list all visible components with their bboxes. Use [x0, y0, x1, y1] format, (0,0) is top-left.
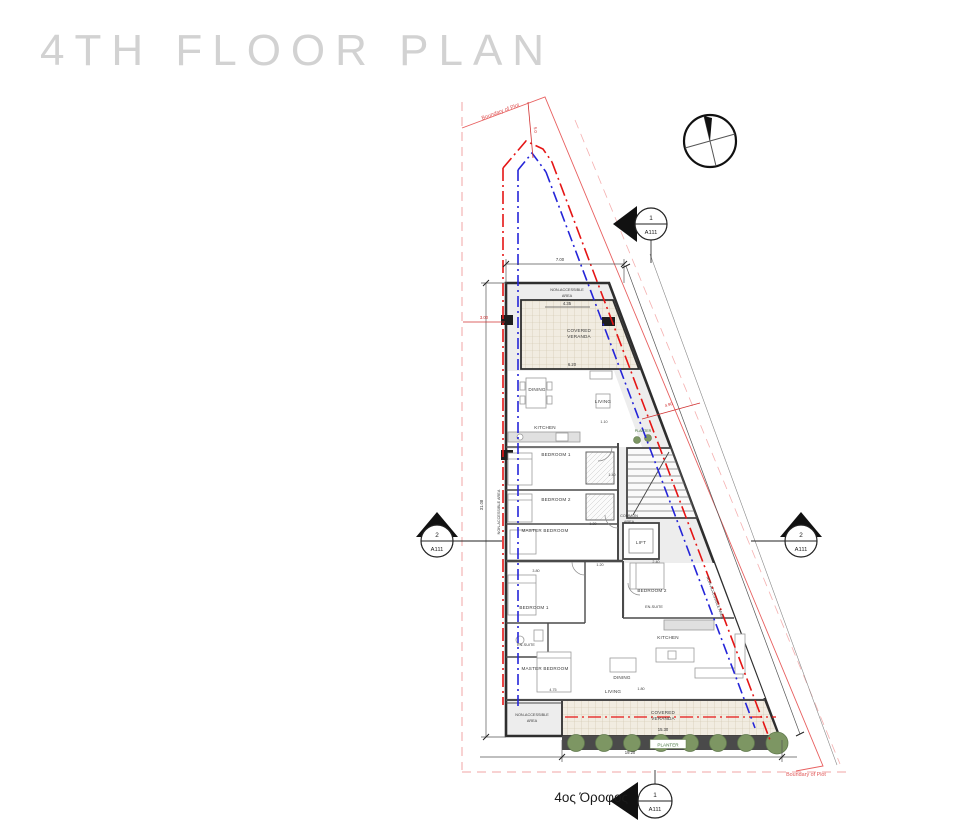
stairs — [627, 448, 697, 518]
dim-side-length: 31.08 — [479, 499, 484, 510]
area-label-covered-veranda-top-2: VERANDA — [567, 334, 591, 339]
area-label-non-accessible-top: NON-ACCESSIBLE — [550, 288, 584, 292]
dim-120: 1.20 — [596, 563, 603, 567]
area-label-non-accessible-bottom-2: AREA — [527, 719, 538, 723]
section-marker-top: 1 A111 — [613, 206, 667, 263]
dim-living-width: 6.20 — [568, 362, 577, 367]
dim-veranda-depth: 4.35 — [563, 301, 572, 306]
section-marker-right-sheet: A111 — [795, 547, 808, 553]
dim-380: 3.80 — [532, 569, 539, 573]
section-marker-top-sheet: A111 — [645, 230, 658, 236]
room-label-bedroom2-1: BEDROOM 2 — [541, 497, 571, 502]
boundary-label-top: Boundary of Plot — [481, 102, 521, 121]
room-label-master-2: MASTER BEDROOM — [522, 666, 569, 671]
section-marker-right-number: 2 — [799, 532, 803, 539]
boundary-label-bottom: Boundary of Plot — [786, 772, 826, 778]
section-marker-bottom-sheet: A111 — [649, 807, 662, 813]
planter-small-label: PLANTER — [635, 429, 652, 433]
dim-bottom-width: 19.20 — [625, 750, 636, 755]
area-label-non-accessible-left: NON-ACCESSIBLE AREA — [497, 489, 501, 534]
room-label-master-1: MASTER BEDROOM — [522, 528, 569, 533]
dim-180: 1.80 — [637, 687, 644, 691]
dim-offset-left: 3.00 — [480, 315, 489, 320]
dim-140: 1.40 — [608, 473, 615, 477]
room-label-dining-1: DINING — [528, 387, 546, 392]
section-marker-bottom-number: 1 — [653, 792, 657, 799]
room-label-kitchen-2: KITCHEN — [657, 635, 679, 640]
room-label-ensuite-a: EN-SUITE — [517, 643, 535, 647]
room-label-bedroom1-2: BEDROOM 1 — [519, 605, 549, 610]
section-marker-left-sheet: A111 — [431, 547, 444, 553]
planter-label: PLANTER — [657, 743, 679, 748]
north-arrow-icon — [684, 115, 736, 167]
dim-110: 1.10 — [600, 420, 607, 424]
section-marker-left-number: 2 — [435, 532, 439, 539]
floor-name-greek: 4ος Όροφος — [554, 790, 628, 805]
floor-plan-drawing: Boundary of Plot Boundary of Plot PLANTE… — [0, 0, 964, 835]
room-label-living-2: LIVING — [605, 689, 621, 694]
room-label-bedroom1-1: BEDROOM 1 — [541, 452, 571, 457]
section-marker-left: 2 A111 — [416, 512, 502, 557]
area-label-common-2: AREA — [624, 520, 635, 524]
room-label-kitchen-1: KITCHEN — [534, 425, 556, 430]
area-label-non-accessible-top-2: AREA — [562, 294, 573, 298]
dim-veranda-bottom-width: 15.30 — [658, 727, 669, 732]
dim-130: 1.30 — [589, 522, 596, 526]
dim-offset-top: 5.0 — [533, 127, 539, 134]
area-label-covered-veranda-top: COVERED — [567, 328, 592, 333]
dim-top-width: 7.00 — [556, 257, 565, 262]
room-label-living-1: LIVING — [595, 399, 611, 404]
room-label-lift: LIFT — [636, 540, 646, 545]
section-marker-right: 2 A111 — [751, 512, 822, 557]
dim-240: 2.40 — [652, 560, 659, 564]
room-label-ensuite-b: EN-SUITE — [645, 605, 663, 609]
section-marker-top-number: 1 — [649, 215, 653, 222]
area-label-non-accessible-bottom: NON-ACCESSIBLE — [515, 713, 549, 717]
area-label-common: COMMON — [620, 514, 638, 518]
dim-offset-diag: 4.90 — [664, 401, 674, 408]
room-label-bedroom2-2: BEDROOM 2 — [637, 588, 667, 593]
area-label-covered-veranda-bottom: COVERED — [651, 710, 676, 715]
dim-475: 4.75 — [549, 688, 556, 692]
room-label-dining-2: DINING — [613, 675, 631, 680]
area-label-covered-veranda-bottom-2: VERANDA — [651, 716, 675, 721]
